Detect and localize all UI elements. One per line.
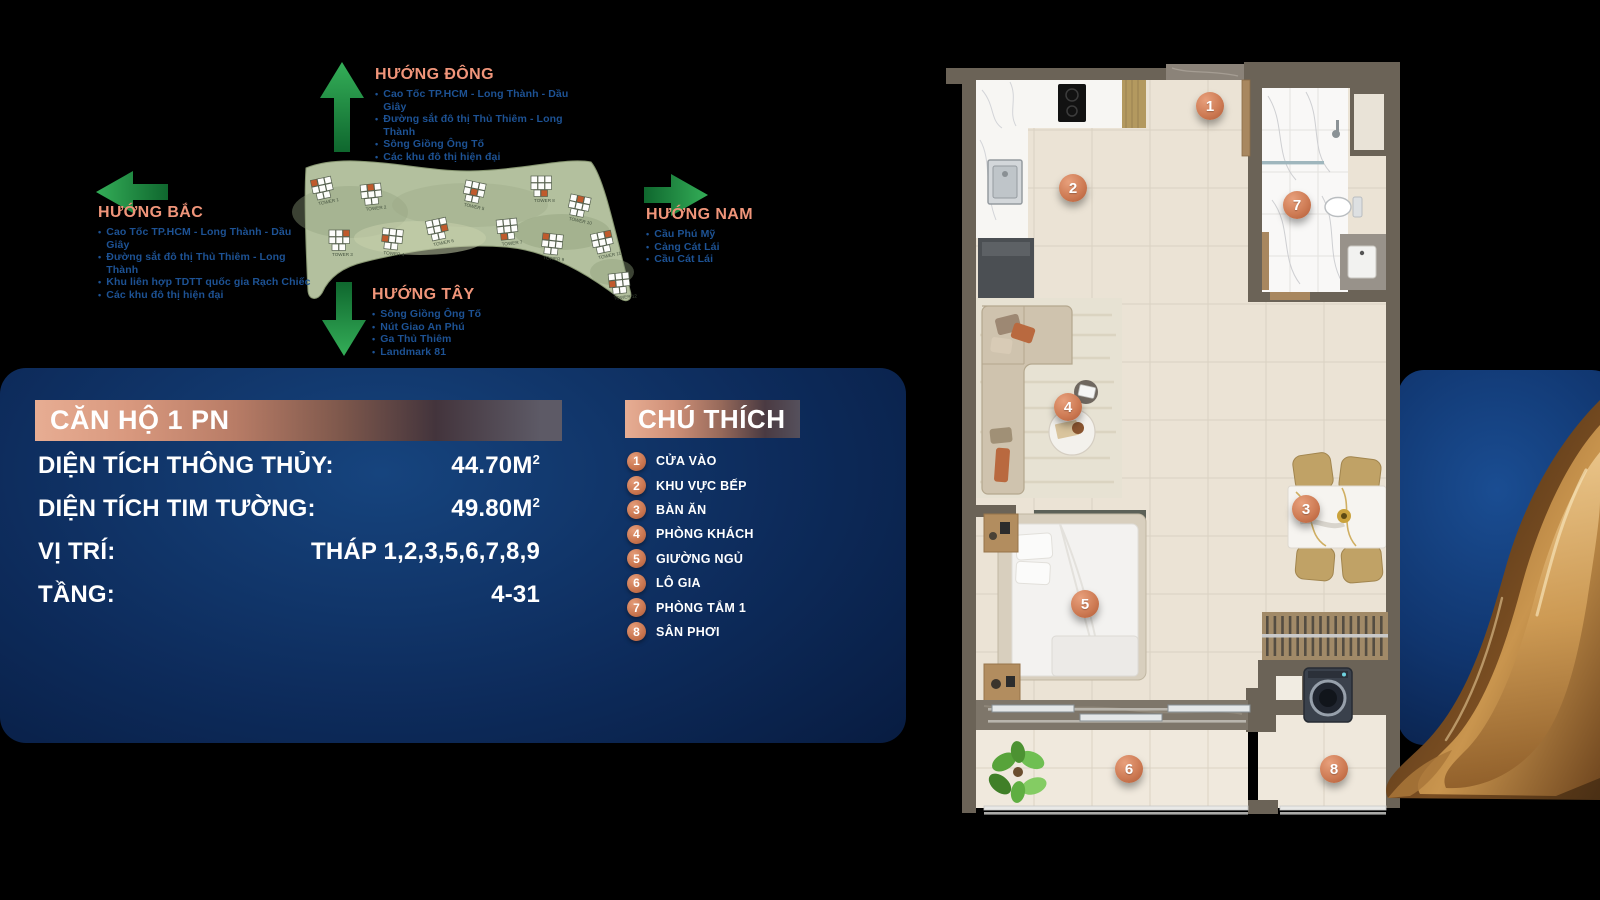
direction-landmark: •Cao Tốc TP.HCM - Long Thành - Dầu Giây bbox=[98, 226, 313, 251]
legend-title-bar: CHÚ THÍCH bbox=[625, 400, 800, 438]
direction-landmark: •Sông Giồng Ông Tố bbox=[375, 138, 585, 151]
bullet-icon: • bbox=[98, 276, 101, 289]
legend-number-badge: 1 bbox=[627, 452, 646, 471]
bullet-icon: • bbox=[372, 308, 375, 321]
spec-row: DIỆN TÍCH TIM TƯỜNG: 49.80M2 bbox=[38, 495, 540, 538]
direction-east: HƯỚNG ĐÔNG •Cao Tốc TP.HCM - Long Thành … bbox=[375, 66, 585, 163]
plan-marker-balcony: 6 bbox=[1115, 755, 1143, 783]
bullet-icon: • bbox=[98, 251, 101, 264]
legend-item-label: KHU VỰC BẾP bbox=[656, 479, 747, 493]
spec-row: TẦNG: 4-31 bbox=[38, 581, 540, 624]
legend-list: 1 CỬA VÀO 2 KHU VỰC BẾP 3 BÀN ĂN 4 PHÒNG… bbox=[627, 449, 754, 644]
legend-item: 1 CỬA VÀO bbox=[627, 449, 754, 473]
site-tower: TOWER 12 bbox=[608, 271, 638, 301]
spec-value: 44.70M2 bbox=[451, 452, 540, 480]
bullet-icon: • bbox=[372, 321, 375, 334]
bullet-icon: • bbox=[375, 138, 378, 151]
bullet-icon: • bbox=[98, 289, 101, 302]
legend-item: 5 GIƯỜNG NGỦ bbox=[627, 547, 754, 571]
legend-item: 4 PHÒNG KHÁCH bbox=[627, 522, 754, 546]
brochure-page: TOWER 1TOWER 2TOWER 3TOWER 4TOWER 5TOWER… bbox=[0, 0, 1600, 900]
legend-item-label: SÂN PHƠI bbox=[656, 625, 720, 639]
svg-text:TOWER 8: TOWER 8 bbox=[534, 198, 555, 203]
direction-landmark: •Các khu đô thị hiện đại bbox=[375, 151, 585, 164]
legend-number-badge: 7 bbox=[627, 598, 646, 617]
spec-row: DIỆN TÍCH THÔNG THỦY: 44.70M2 bbox=[38, 452, 540, 495]
spec-value: 4-31 bbox=[491, 581, 540, 609]
site-tower: TOWER 3 bbox=[329, 230, 353, 257]
legend-item-label: PHÒNG KHÁCH bbox=[656, 527, 754, 541]
direction-north-title: HƯỚNG BẮC bbox=[98, 204, 313, 222]
bullet-icon: • bbox=[98, 226, 101, 239]
arrow-west-icon bbox=[322, 282, 366, 356]
bullet-icon: • bbox=[375, 113, 378, 126]
legend-item: 2 KHU VỰC BẾP bbox=[627, 473, 754, 497]
direction-landmark: •Cầu Cát Lái bbox=[646, 253, 796, 266]
direction-north: HƯỚNG BẮC •Cao Tốc TP.HCM - Long Thành -… bbox=[98, 204, 313, 301]
direction-south-title: HƯỚNG NAM bbox=[646, 206, 796, 224]
bullet-icon: • bbox=[372, 346, 375, 359]
legend-number-badge: 2 bbox=[627, 476, 646, 495]
spec-value: 49.80M2 bbox=[451, 495, 540, 523]
legend-number-badge: 5 bbox=[627, 549, 646, 568]
bullet-icon: • bbox=[372, 333, 375, 346]
spec-label: TẦNG: bbox=[38, 581, 115, 609]
direction-landmark: •Cao Tốc TP.HCM - Long Thành - Dầu Giây bbox=[375, 88, 585, 113]
legend-item-label: GIƯỜNG NGỦ bbox=[656, 552, 743, 566]
legend-number-badge: 3 bbox=[627, 500, 646, 519]
legend-number-badge: 8 bbox=[627, 622, 646, 641]
direction-east-list: •Cao Tốc TP.HCM - Long Thành - Dầu Giây•… bbox=[375, 88, 585, 163]
direction-landmark: •Cảng Cát Lái bbox=[646, 241, 796, 254]
legend-number-badge: 6 bbox=[627, 574, 646, 593]
bullet-icon: • bbox=[646, 253, 649, 266]
living-room bbox=[976, 298, 1122, 498]
direction-landmark: •Landmark 81 bbox=[372, 346, 552, 359]
plan-marker-living: 4 bbox=[1054, 393, 1082, 421]
legend-title: CHÚ THÍCH bbox=[638, 404, 786, 435]
apartment-title-bar: CĂN HỘ 1 PN bbox=[35, 400, 562, 441]
spec-label: DIỆN TÍCH THÔNG THỦY: bbox=[38, 452, 334, 480]
direction-landmark: •Nút Giao An Phú bbox=[372, 321, 552, 334]
legend-number-badge: 4 bbox=[627, 525, 646, 544]
plan-marker-bed: 5 bbox=[1071, 590, 1099, 618]
direction-landmark: •Các khu đô thị hiện đại bbox=[98, 289, 313, 302]
legend-item-label: PHÒNG TẮM 1 bbox=[656, 601, 746, 615]
plan-marker-bathroom: 7 bbox=[1283, 191, 1311, 219]
direction-landmark: •Đường sắt đô thị Thủ Thiêm - Long Thành bbox=[375, 113, 585, 138]
direction-landmark: •Sông Giồng Ông Tố bbox=[372, 308, 552, 321]
bullet-icon: • bbox=[375, 151, 378, 164]
spec-value: THÁP 1,2,3,5,6,7,8,9 bbox=[311, 538, 540, 566]
plan-marker-dining: 3 bbox=[1292, 495, 1320, 523]
arrow-east-icon bbox=[320, 62, 364, 152]
direction-west-list: •Sông Giồng Ông Tố•Nút Giao An Phú•Ga Th… bbox=[372, 308, 552, 358]
plan-marker-laundry: 8 bbox=[1320, 755, 1348, 783]
floor-plan bbox=[930, 55, 1400, 825]
site-tower: TOWER 8 bbox=[531, 176, 555, 203]
bullet-icon: • bbox=[646, 228, 649, 241]
legend-item: 7 PHÒNG TẮM 1 bbox=[627, 595, 754, 619]
plan-marker-entrance: 1 bbox=[1196, 92, 1224, 120]
legend-item-label: LÔ GIA bbox=[656, 576, 701, 590]
direction-landmark: •Cầu Phú Mỹ bbox=[646, 228, 796, 241]
apartment-title: CĂN HỘ 1 PN bbox=[50, 405, 230, 436]
legend-item: 3 BÀN ĂN bbox=[627, 498, 754, 522]
spec-label: DIỆN TÍCH TIM TƯỜNG: bbox=[38, 495, 316, 523]
direction-south-list: •Cầu Phú Mỹ•Cảng Cát Lái•Cầu Cát Lái bbox=[646, 228, 796, 266]
apartment-specs: DIỆN TÍCH THÔNG THỦY: 44.70M2 DIỆN TÍCH … bbox=[38, 452, 540, 624]
legend-item-label: BÀN ĂN bbox=[656, 503, 706, 517]
svg-text:TOWER 3: TOWER 3 bbox=[332, 252, 353, 257]
bullet-icon: • bbox=[646, 241, 649, 254]
direction-south: HƯỚNG NAM •Cầu Phú Mỹ•Cảng Cát Lái•Cầu C… bbox=[646, 206, 796, 266]
direction-east-title: HƯỚNG ĐÔNG bbox=[375, 66, 585, 84]
spec-label: VỊ TRÍ: bbox=[38, 538, 115, 566]
svg-text:TOWER 9: TOWER 9 bbox=[543, 255, 565, 262]
bedroom bbox=[976, 505, 1146, 706]
direction-west: HƯỚNG TÂY •Sông Giồng Ông Tố•Nút Giao An… bbox=[372, 286, 552, 358]
legend-item-label: CỬA VÀO bbox=[656, 454, 717, 468]
direction-landmark: •Đường sắt đô thị Thủ Thiêm - Long Thành bbox=[98, 251, 313, 276]
bullet-icon: • bbox=[375, 88, 378, 101]
direction-north-list: •Cao Tốc TP.HCM - Long Thành - Dầu Giây•… bbox=[98, 226, 313, 301]
direction-west-title: HƯỚNG TÂY bbox=[372, 286, 552, 304]
apartment-info-panel: CĂN HỘ 1 PN DIỆN TÍCH THÔNG THỦY: 44.70M… bbox=[0, 368, 906, 743]
spec-row: VỊ TRÍ: THÁP 1,2,3,5,6,7,8,9 bbox=[38, 538, 540, 581]
plan-marker-kitchen: 2 bbox=[1059, 174, 1087, 202]
direction-landmark: •Ga Thủ Thiêm bbox=[372, 333, 552, 346]
legend-item: 8 SÂN PHƠI bbox=[627, 620, 754, 644]
gold-drape bbox=[1370, 360, 1600, 820]
legend-item: 6 LÔ GIA bbox=[627, 571, 754, 595]
direction-landmark: •Khu liên hợp TDTT quốc gia Rạch Chiếc bbox=[98, 276, 313, 289]
